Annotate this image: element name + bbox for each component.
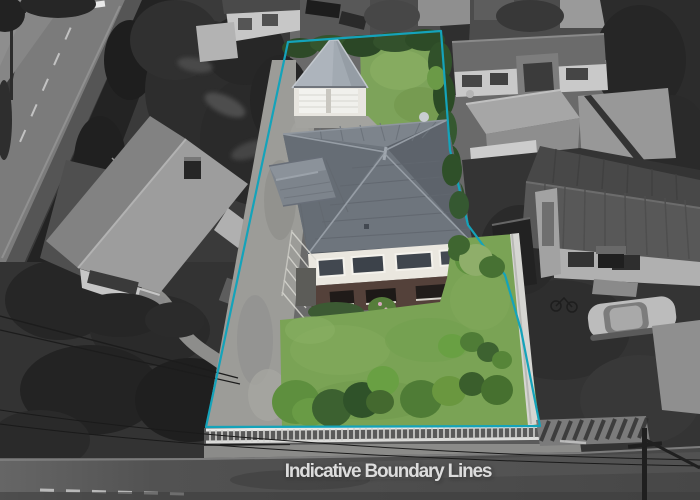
svg-text:Indicative Boundary Lines: Indicative Boundary Lines — [285, 461, 492, 482]
